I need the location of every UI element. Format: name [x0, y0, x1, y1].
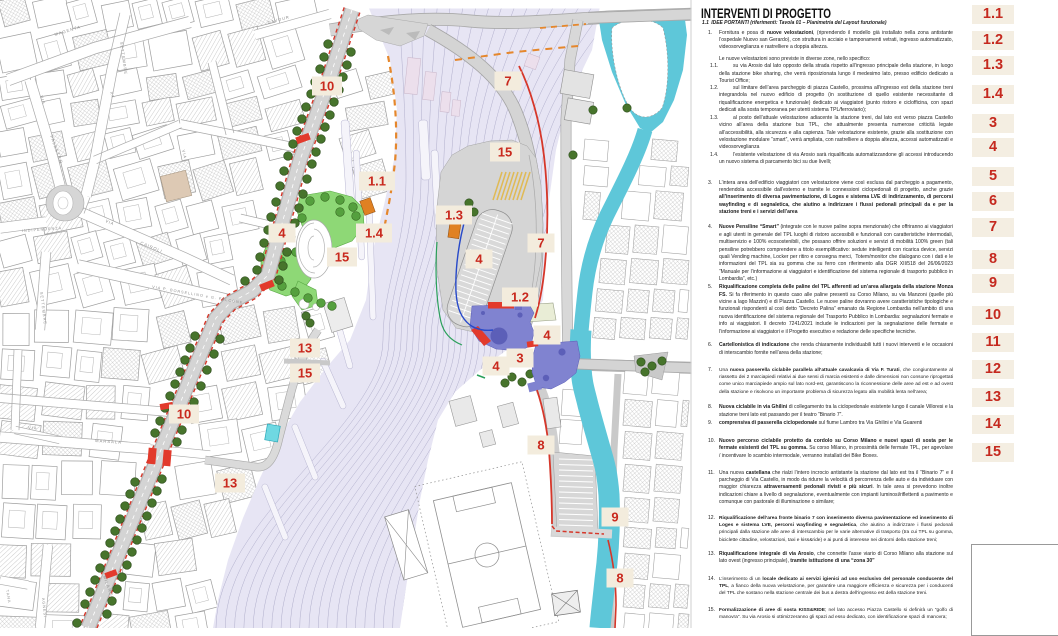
svg-text:4: 4 [543, 328, 551, 343]
svg-text:15: 15 [335, 250, 349, 265]
svg-text:9: 9 [611, 510, 618, 525]
svg-text:7: 7 [504, 74, 511, 89]
svg-text:1.4: 1.4 [365, 226, 384, 241]
svg-text:8: 8 [537, 438, 544, 453]
svg-text:1.1: 1.1 [368, 174, 386, 189]
svg-text:7: 7 [537, 236, 544, 251]
svg-text:8: 8 [616, 571, 623, 586]
svg-text:10: 10 [320, 79, 334, 94]
svg-text:4: 4 [475, 252, 483, 267]
svg-text:4: 4 [492, 359, 500, 374]
svg-text:4: 4 [278, 226, 286, 241]
svg-text:3: 3 [516, 351, 523, 366]
svg-text:VIA: VIA [28, 425, 38, 430]
svg-text:15: 15 [298, 366, 312, 381]
svg-text:13: 13 [298, 341, 312, 356]
svg-text:15: 15 [498, 145, 512, 160]
svg-text:1.2: 1.2 [511, 290, 529, 305]
svg-text:13: 13 [223, 476, 237, 491]
svg-text:10: 10 [177, 407, 191, 422]
svg-text:1.3: 1.3 [445, 208, 463, 223]
